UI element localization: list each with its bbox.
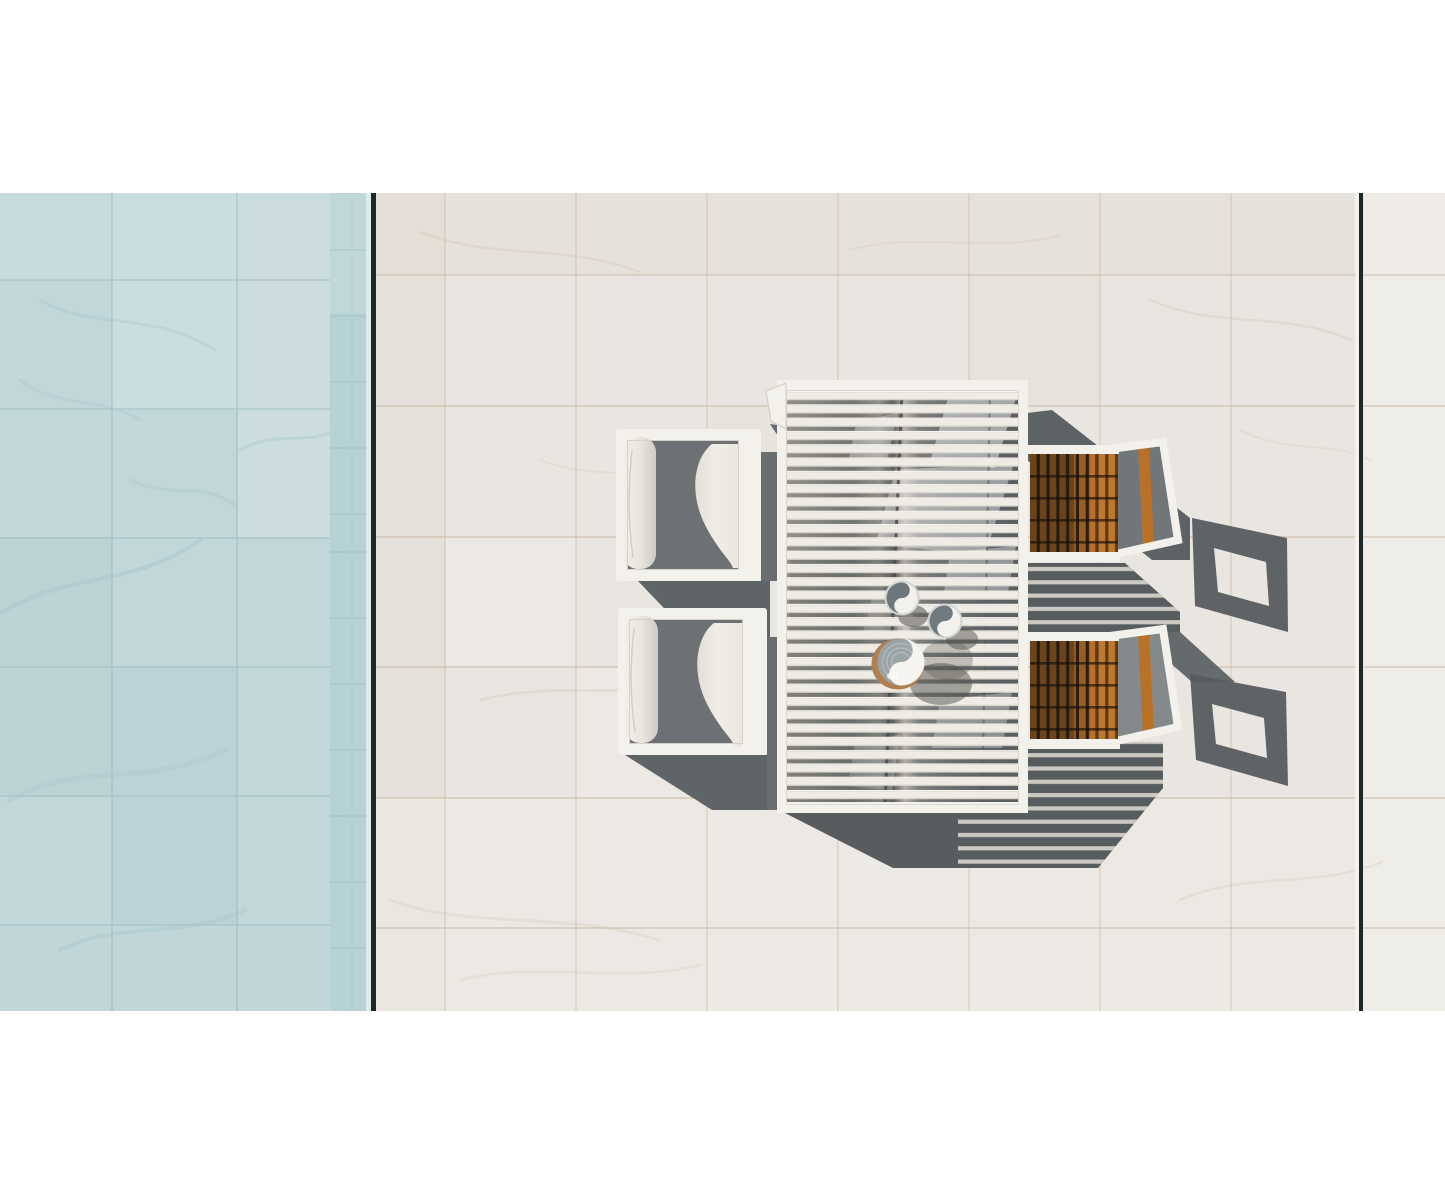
photo-canvas <box>0 0 1445 1204</box>
teak-seat-halfshade <box>1074 454 1090 552</box>
pool-tile-highlight <box>237 193 330 538</box>
teak-seat-shaded <box>1030 641 1074 739</box>
teak-seat-halfshade <box>1074 641 1090 739</box>
table-shadow-stripes <box>958 810 1028 868</box>
deck-tile <box>445 537 576 667</box>
armchair-1 <box>616 429 761 581</box>
aerial-photo <box>0 0 1445 1204</box>
glass-edge-highlight <box>366 193 371 1011</box>
small-bowl-2 <box>928 604 963 639</box>
pool-tile-highlight <box>0 193 112 280</box>
edge-band-highlight <box>330 193 371 313</box>
deck-tile-highlight <box>1364 193 1445 1011</box>
pool-tile-shade <box>0 925 330 1011</box>
armchair1-gap-shadow <box>761 452 777 581</box>
armchair2-gap-shadow <box>767 637 777 810</box>
teak-seat-sunlit <box>1096 641 1118 739</box>
swimming-pool <box>0 193 330 1011</box>
deck-tile-shade <box>376 193 1445 275</box>
pool-infinity-edge <box>330 193 376 1011</box>
large-bowl-on-charger <box>872 639 925 690</box>
teak-chair-2 <box>1027 629 1178 749</box>
teak-chair-1 <box>1027 442 1178 562</box>
teak-seat-shaded <box>1030 454 1074 552</box>
chair-top-rail <box>1027 632 1119 641</box>
teak-seat-sunlit <box>1096 454 1118 552</box>
expansion-joint-highlight <box>1355 193 1359 1011</box>
chair-bottom-rail <box>1027 739 1120 749</box>
small-bowl-1 <box>885 581 920 616</box>
chair-top-rail <box>1027 445 1119 454</box>
pool-edge-seam <box>371 193 376 1011</box>
expansion-joint-seam <box>1359 193 1363 1011</box>
armchair-2 <box>618 608 767 755</box>
chair-bottom-rail <box>1027 552 1120 562</box>
pool-tile-highlight <box>112 193 237 409</box>
